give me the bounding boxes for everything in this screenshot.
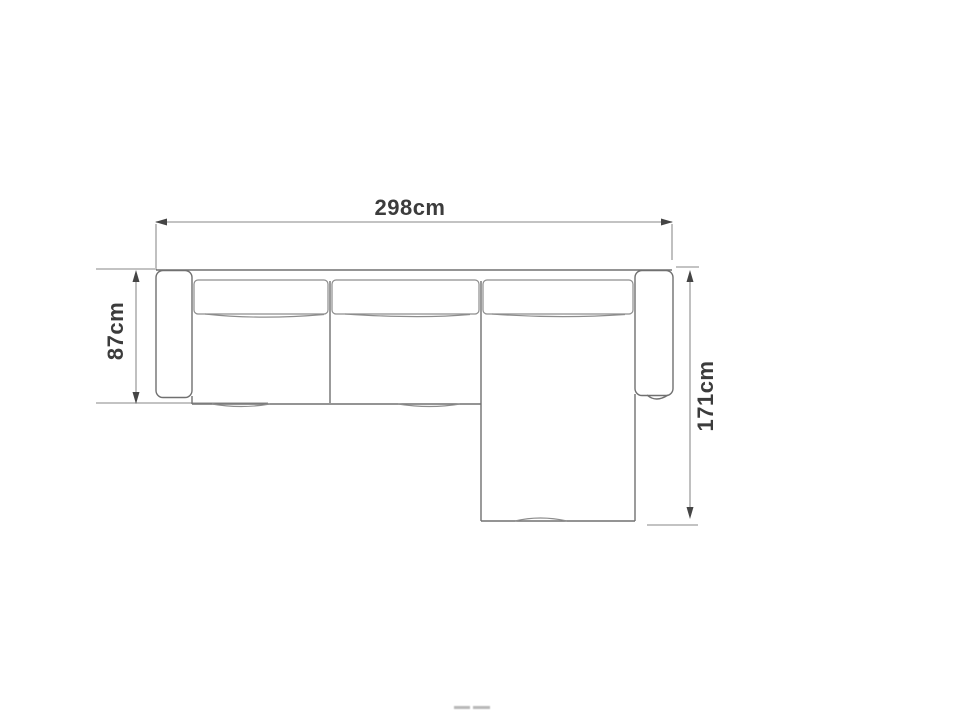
arrowhead-down-icon xyxy=(133,392,140,404)
arrowhead-up-icon xyxy=(687,270,694,282)
chaise-dimension-label: 171cm xyxy=(693,360,719,431)
arrowhead-right-icon xyxy=(661,219,673,226)
sofa-outline-group xyxy=(156,270,673,521)
arrowheads-group xyxy=(133,219,694,520)
back-cushion-left xyxy=(194,280,328,314)
depth-dimension-label: 87cm xyxy=(103,302,129,360)
arrowhead-left-icon xyxy=(155,219,167,226)
back-cushion-right xyxy=(483,280,633,314)
sofa-right-armrest xyxy=(635,271,673,396)
width-dimension-label: 298cm xyxy=(374,195,445,221)
sofa-dimension-drawing xyxy=(0,0,960,710)
cutoff-text-fragment xyxy=(454,706,470,709)
arrowhead-down-icon xyxy=(687,507,694,519)
diagram-canvas: 298cm 87cm 171cm xyxy=(0,0,960,710)
dimension-lines-group xyxy=(96,222,699,525)
cutoff-text-fragment xyxy=(473,706,490,709)
cushions-group xyxy=(194,280,633,521)
arrowhead-up-icon xyxy=(133,270,140,282)
sofa-left-armrest xyxy=(156,271,192,398)
back-cushion-middle xyxy=(332,280,479,314)
